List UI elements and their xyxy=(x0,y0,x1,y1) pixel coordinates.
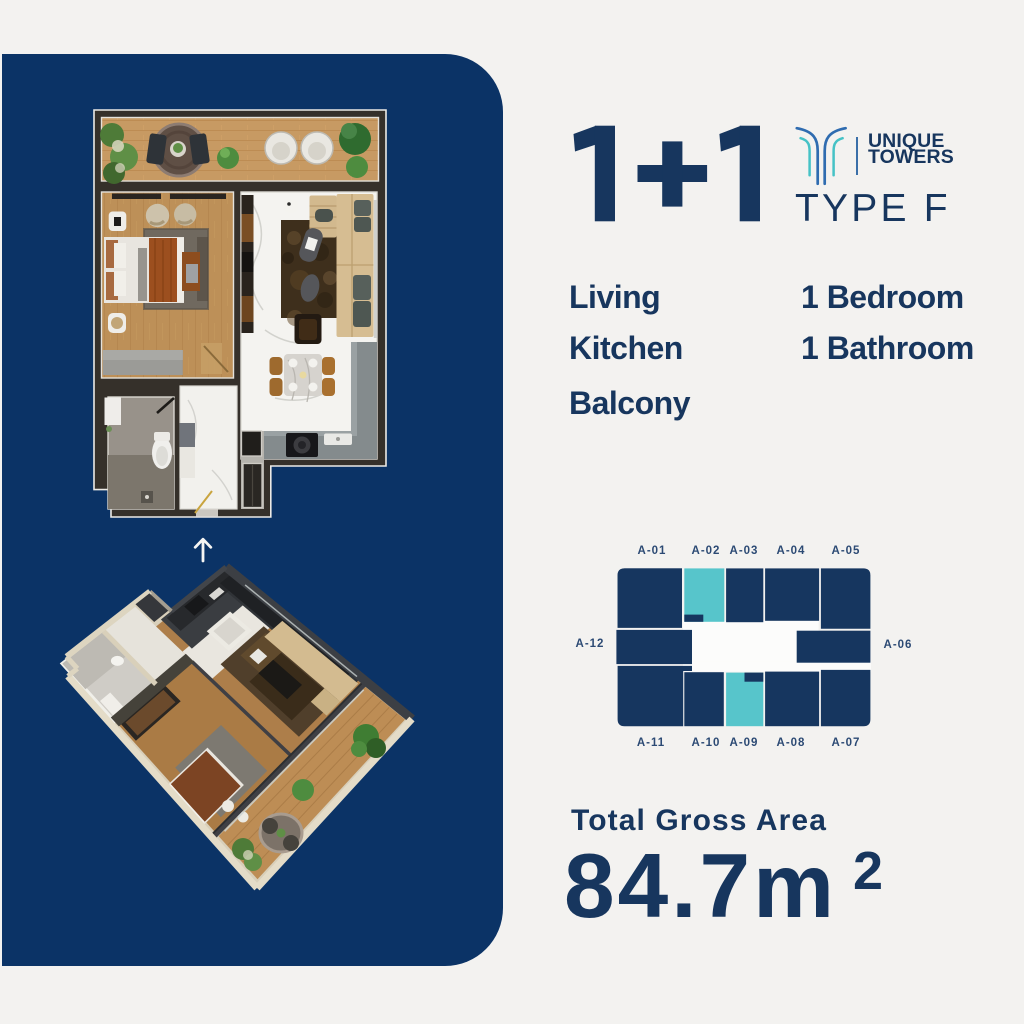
svg-text:A-01: A-01 xyxy=(638,545,667,557)
svg-text:A-06: A-06 xyxy=(884,639,913,651)
svg-text:A-10: A-10 xyxy=(692,737,721,749)
svg-text:A-11: A-11 xyxy=(637,737,665,749)
svg-text:A-07: A-07 xyxy=(832,737,861,749)
svg-text:A-09: A-09 xyxy=(730,737,759,749)
svg-text:A-04: A-04 xyxy=(777,545,806,557)
svg-text:A-03: A-03 xyxy=(730,545,759,557)
svg-text:A-12: A-12 xyxy=(576,638,605,650)
svg-text:A-08: A-08 xyxy=(777,737,806,749)
svg-text:A-02: A-02 xyxy=(692,545,721,557)
svg-text:A-05: A-05 xyxy=(832,545,861,557)
